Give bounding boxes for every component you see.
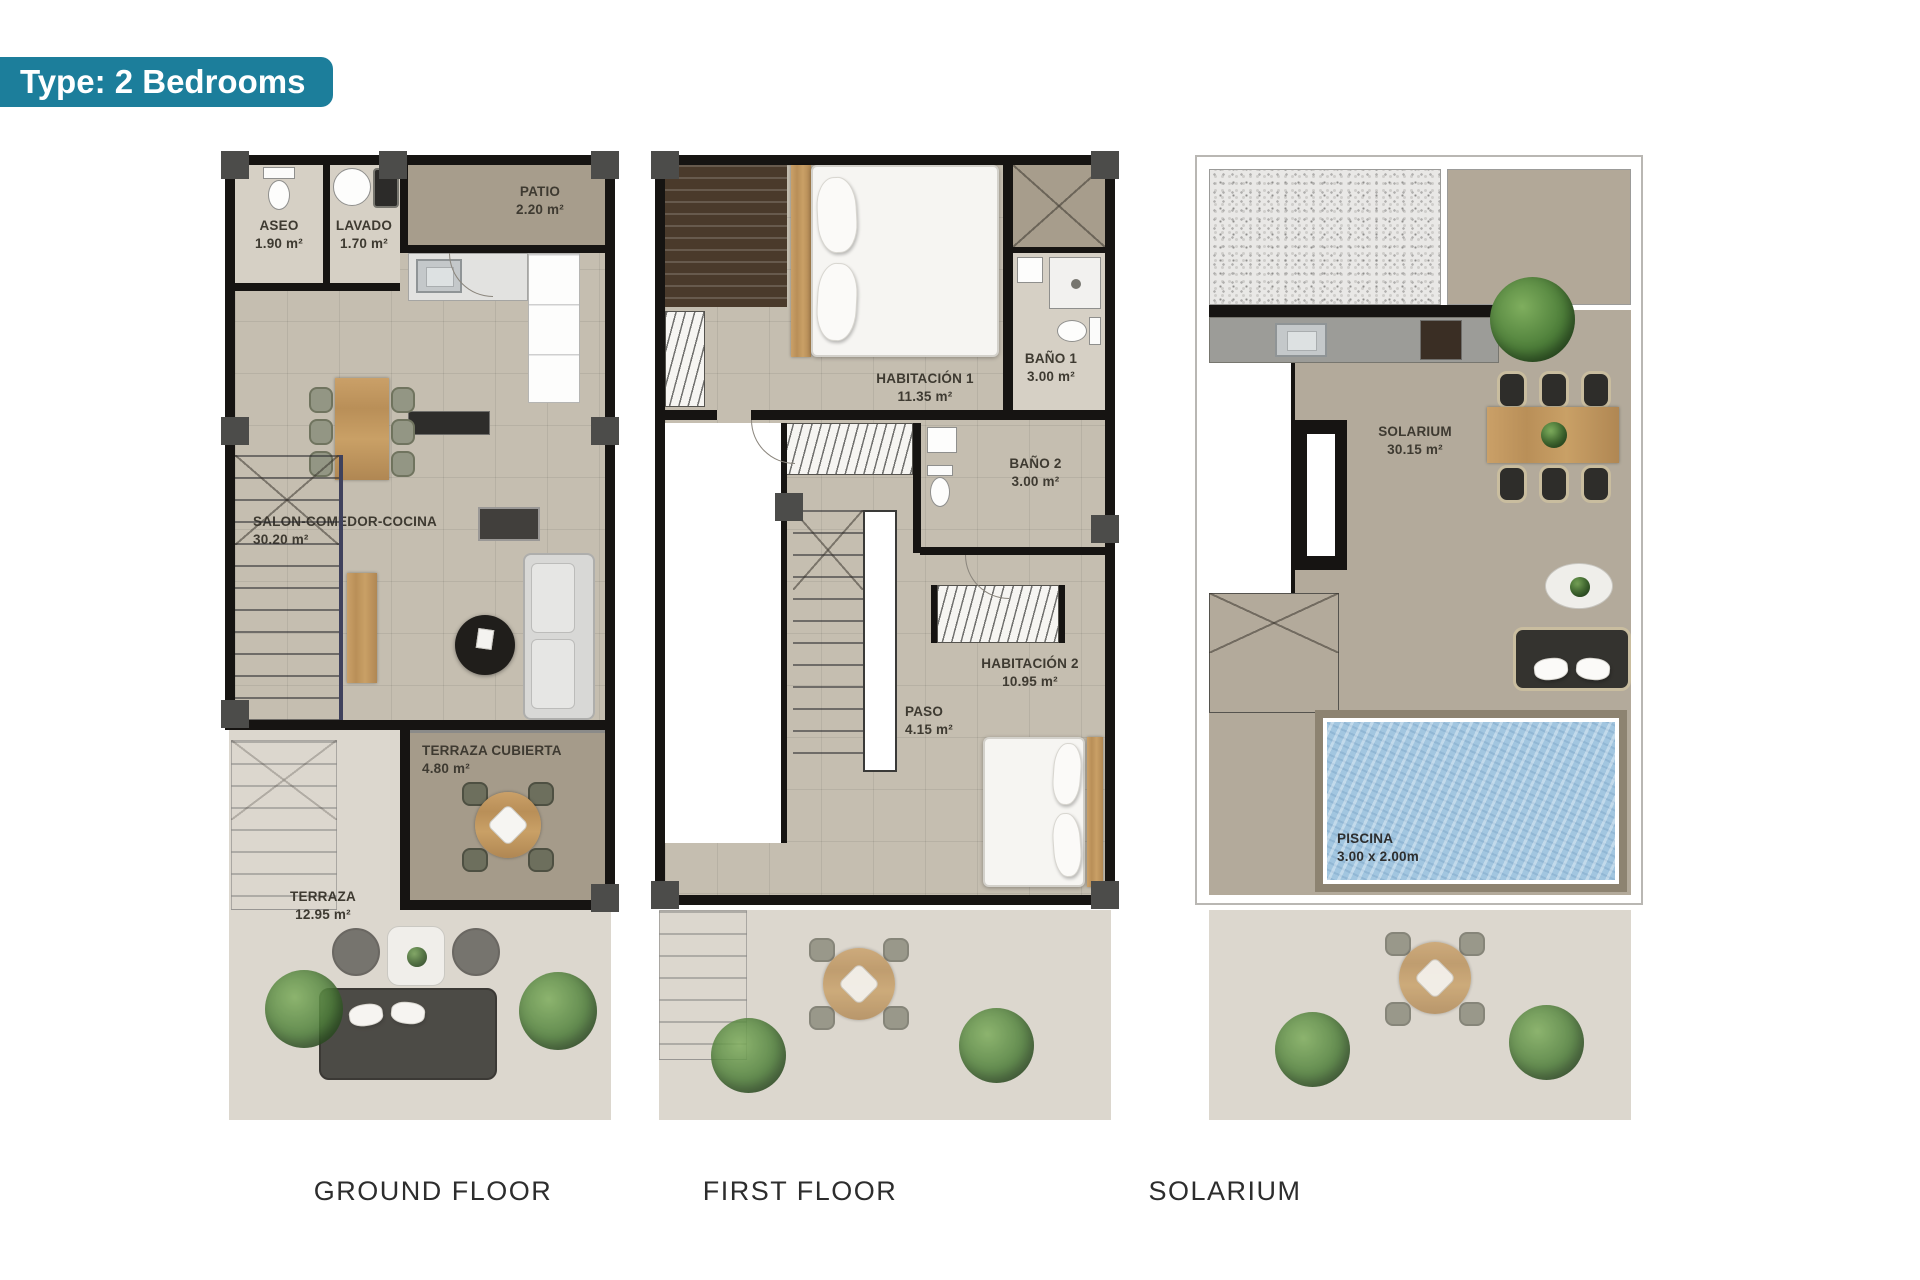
- sol-pool: PISCINA 3.00 x 2.00m: [1315, 710, 1627, 892]
- sol-plant-top: [1490, 277, 1575, 362]
- solarium-plan: SOLARIUM 30.15 m² PISCINA 3.00 x 2.00m: [1195, 155, 1655, 1120]
- ff-toilet1-bowl: [1057, 320, 1087, 342]
- gf-stairs-stringer: [339, 455, 343, 720]
- ff-bano2-sink: [927, 427, 957, 453]
- ff-pillar-3: [1091, 515, 1119, 543]
- gf-patio-chair-3: [462, 848, 488, 872]
- gf-dining-chair-2: [309, 419, 333, 445]
- ff-toilet2-bowl: [930, 477, 950, 507]
- gf-terrace-table-plant-icon: [407, 947, 427, 967]
- floorplan-sheet: Type: 2 Bedrooms TERRAZA 12.95 m²: [0, 0, 1920, 1280]
- room-area-bano2: 3.00 m²: [983, 473, 1088, 491]
- room-label-habitacion1: HABITACIÓN 1 11.35 m²: [850, 370, 1000, 406]
- room-name-piscina: PISCINA: [1337, 830, 1467, 848]
- sol-terrace-floor: [1209, 910, 1631, 1120]
- gf-stairs-cross: [235, 455, 339, 545]
- gf-main-box: ASEO 1.90 m² LAVADO 1.70 m² PATIO 2.20 m…: [225, 155, 615, 730]
- gf-pillar-3: [591, 151, 619, 179]
- room-area-terraza-cubierta: 4.80 m²: [422, 760, 582, 778]
- gf-dining-chair-6: [391, 451, 415, 477]
- ff-mid-wall-gap: [717, 410, 751, 420]
- ff-pillar-4: [775, 493, 803, 521]
- ff-terrace-plant-right: [959, 1008, 1034, 1083]
- gf-terrace-sofa: [319, 988, 497, 1080]
- gf-sofa-cushion-1: [531, 563, 575, 633]
- gf-pillar-6: [221, 700, 249, 728]
- ff-wardrobe-left: [665, 311, 705, 407]
- sol-dining-table: [1487, 407, 1619, 463]
- room-area-aseo: 1.90 m²: [235, 235, 323, 253]
- gf-terrace-plant-left: [265, 970, 343, 1048]
- caption-ground-floor: GROUND FLOOR: [233, 1176, 633, 1207]
- gf-coffee-table-paper: [476, 628, 495, 650]
- ff-terrace-chair-1: [809, 938, 835, 962]
- ff-terrace-chair-3: [809, 1006, 835, 1030]
- room-area-habitacion1: 11.35 m²: [850, 388, 1000, 406]
- ff-stairs-cross: [793, 510, 863, 590]
- gf-cooktop: [408, 411, 490, 435]
- room-area-patio: 2.20 m²: [490, 201, 590, 219]
- gf-pillar-5: [591, 417, 619, 445]
- ff-toilet2-tank: [927, 465, 953, 476]
- room-label-piscina: PISCINA 3.00 x 2.00m: [1337, 830, 1467, 866]
- ff-wardrobe2-wall-r: [1059, 585, 1065, 643]
- room-name-patio: PATIO: [490, 183, 590, 201]
- gf-coffee-table: [455, 615, 515, 675]
- room-name-terraza-cubierta: TERRAZA CUBIERTA: [422, 742, 582, 760]
- room-area-bano1: 3.00 m²: [1011, 368, 1091, 386]
- room-area-piscina: 3.00 x 2.00m: [1337, 848, 1467, 866]
- gf-sofa: [523, 553, 595, 720]
- room-label-terraza-cubierta: TERRAZA CUBIERTA 4.80 m²: [422, 742, 582, 778]
- sol-chair-2: [1539, 371, 1569, 409]
- room-label-bano2: BAÑO 2 3.00 m²: [983, 455, 1088, 491]
- gf-pillar-2: [379, 151, 407, 179]
- sol-stair-box: [1295, 420, 1347, 570]
- gf-terrace-table: [387, 926, 445, 986]
- gf-toilet-bowl: [268, 180, 290, 210]
- room-area-habitacion2: 10.95 m²: [955, 673, 1105, 691]
- ff-bed1-headboard: [791, 165, 811, 357]
- ff-stairwell-void: [863, 510, 897, 772]
- gf-terrace-sofa-pillow-1: [348, 1002, 385, 1029]
- sol-sofa: [1513, 627, 1631, 691]
- room-label-paso: PASO 4.15 m²: [905, 703, 995, 739]
- gf-outdoor-stairs-cross: [231, 740, 337, 820]
- room-name-paso: PASO: [905, 703, 995, 721]
- room-name-solarium: SOLARIUM: [1345, 423, 1485, 441]
- gf-pillar-4: [221, 417, 249, 445]
- ff-terrace-chair-4: [883, 1006, 909, 1030]
- room-label-habitacion2: HABITACIÓN 2 10.95 m²: [955, 655, 1105, 691]
- type-badge: Type: 2 Bedrooms: [0, 57, 333, 107]
- room-name-terraza: TERRAZA: [273, 888, 373, 906]
- sol-terrace-chair-1: [1385, 932, 1411, 956]
- sol-chair-6: [1581, 465, 1611, 503]
- gf-terrace-plant-right: [519, 972, 597, 1050]
- gf-pillar-7: [591, 884, 619, 912]
- sol-stairs-cross: [1209, 593, 1339, 653]
- room-name-habitacion2: HABITACIÓN 2: [955, 655, 1105, 673]
- ff-toilet1-tank: [1089, 317, 1101, 345]
- room-label-patio: PATIO 2.20 m²: [490, 183, 590, 219]
- sol-chair-5: [1539, 465, 1569, 503]
- sol-terrace-chair-3: [1385, 1002, 1411, 1026]
- ff-pillar-2: [1091, 151, 1119, 179]
- sol-chair-3: [1581, 371, 1611, 409]
- ff-bano2-wall-bottom: [920, 547, 1105, 555]
- sol-table-plant-icon: [1541, 422, 1567, 448]
- ff-terrace-chair-2: [883, 938, 909, 962]
- room-area-lavado: 1.70 m²: [325, 235, 403, 253]
- ff-bano1-sink: [1017, 257, 1043, 283]
- gf-patio-chair-4: [528, 848, 554, 872]
- sol-sink: [1275, 323, 1327, 357]
- sol-terrace-plant-left: [1275, 1012, 1350, 1087]
- sol-terrace-chair-2: [1459, 932, 1485, 956]
- ff-pillar-5: [651, 881, 679, 909]
- room-name-bano2: BAÑO 2: [983, 455, 1088, 473]
- sol-terrace-chair-4: [1459, 1002, 1485, 1026]
- room-name-bano1: BAÑO 1: [1011, 350, 1091, 368]
- gf-terrace-chair-left: [332, 928, 380, 976]
- sol-sofa-pillow-1: [1533, 656, 1569, 681]
- room-label-lavado: LAVADO 1.70 m²: [325, 217, 403, 253]
- gf-patio-wall-bottom: [400, 245, 605, 253]
- room-area-terraza: 12.95 m²: [273, 906, 373, 924]
- room-label-aseo: ASEO 1.90 m²: [235, 217, 323, 253]
- sol-terrace-plant-right: [1509, 1005, 1584, 1080]
- gf-sofa-cushion-2: [531, 639, 575, 709]
- ff-terrace-floor: [659, 910, 1111, 1120]
- sol-oval-table: [1545, 563, 1613, 609]
- caption-solarium: SOLARIUM: [1025, 1176, 1425, 1207]
- ff-wardrobe2-wall-l: [931, 585, 937, 643]
- room-label-solarium: SOLARIUM 30.15 m²: [1345, 423, 1485, 459]
- room-label-bano1: BAÑO 1 3.00 m²: [1011, 350, 1091, 386]
- ff-bano1-wall-top: [1013, 247, 1105, 253]
- room-name-aseo: ASEO: [235, 217, 323, 235]
- sol-chair-4: [1497, 465, 1527, 503]
- gf-pillar-1: [221, 151, 249, 179]
- sol-stair-box-window: [1307, 434, 1335, 556]
- room-area-solarium: 30.15 m²: [1345, 441, 1485, 459]
- room-label-terraza: TERRAZA 12.95 m²: [273, 888, 373, 924]
- gf-toilet-tank: [263, 167, 295, 179]
- room-name-habitacion1: HABITACIÓN 1: [850, 370, 1000, 388]
- gf-dining-chair-5: [391, 419, 415, 445]
- first-floor-plan: HABITACIÓN 1 11.35 m² BAÑO 1 3.00 m²: [655, 155, 1115, 1120]
- sol-gravel: [1209, 169, 1441, 305]
- sol-sofa-pillow-2: [1575, 657, 1611, 682]
- caption-first-floor: FIRST FLOOR: [600, 1176, 1000, 1207]
- gf-dining-table: [335, 378, 389, 480]
- gf-dining-chair-4: [391, 387, 415, 413]
- ff-shower: [1049, 257, 1101, 309]
- sol-void: [1209, 363, 1295, 593]
- gf-covered-terrace: TERRAZA CUBIERTA 4.80 m²: [400, 730, 615, 910]
- ff-pillar-1: [651, 151, 679, 179]
- ff-void: [665, 423, 787, 843]
- ff-bano2-wall-left: [913, 423, 921, 553]
- ff-bed2-headboard: [1087, 737, 1103, 887]
- gf-tv-unit: [478, 507, 540, 541]
- sol-chair-1: [1497, 371, 1527, 409]
- ff-main-box: HABITACIÓN 1 11.35 m² BAÑO 1 3.00 m²: [655, 155, 1115, 905]
- gf-terrace-sofa-pillow-2: [390, 1000, 426, 1025]
- ff-closet-dark: [665, 165, 787, 307]
- gf-appliance-column: [528, 253, 580, 403]
- ff-shower-drain: [1071, 279, 1081, 289]
- gf-wetrooms-wall: [235, 283, 400, 291]
- ground-floor-plan: TERRAZA 12.95 m² TERRAZA CUBIERTA 4.80 m…: [225, 155, 615, 1120]
- gf-sideboard: [347, 573, 377, 683]
- sol-counter-appliance: [1420, 320, 1462, 360]
- ff-pillar-6: [1091, 881, 1119, 909]
- gf-dining-chair-1: [309, 387, 333, 413]
- gf-sliding-door-line: [410, 730, 605, 733]
- gf-terrace-chair-right: [452, 928, 500, 976]
- ff-terrace-plant-left: [711, 1018, 786, 1093]
- room-area-paso: 4.15 m²: [905, 721, 995, 739]
- gf-washbasin: [333, 168, 371, 206]
- sol-oval-table-plant-icon: [1570, 577, 1590, 597]
- room-name-lavado: LAVADO: [325, 217, 403, 235]
- sol-counter-wall: [1209, 305, 1509, 317]
